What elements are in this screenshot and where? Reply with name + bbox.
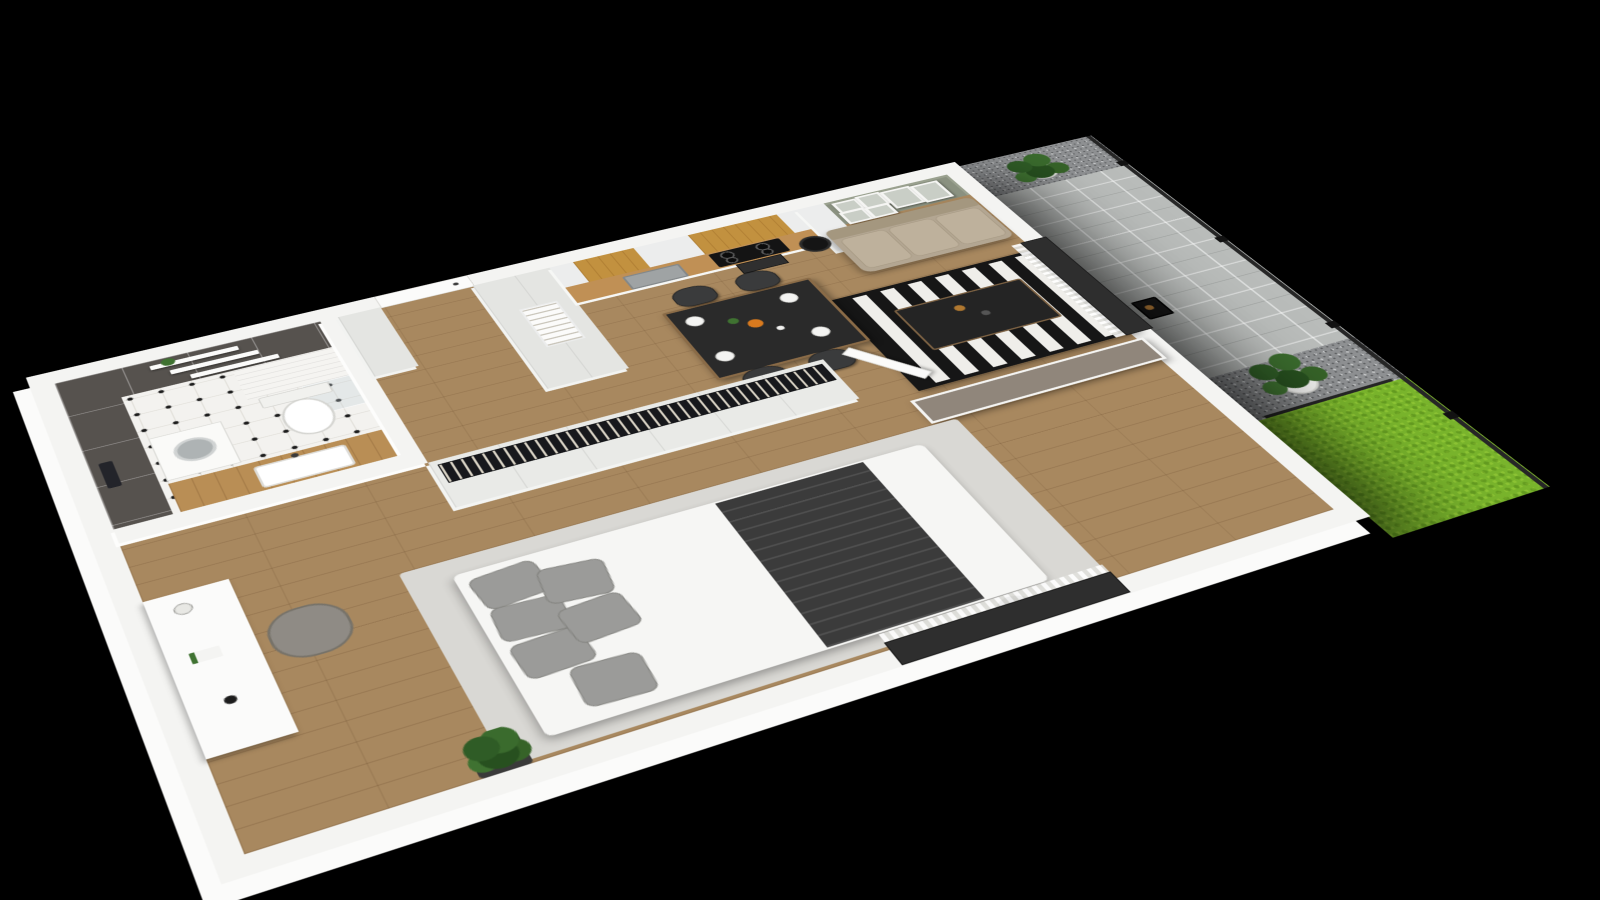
isometric-floorplan <box>26 130 1566 900</box>
entrance-door <box>374 275 476 308</box>
wardrobe-clothes-rail <box>437 364 836 483</box>
bedroom-desk <box>143 579 299 760</box>
desk-armchair <box>259 596 363 666</box>
render-canvas <box>0 0 1600 900</box>
